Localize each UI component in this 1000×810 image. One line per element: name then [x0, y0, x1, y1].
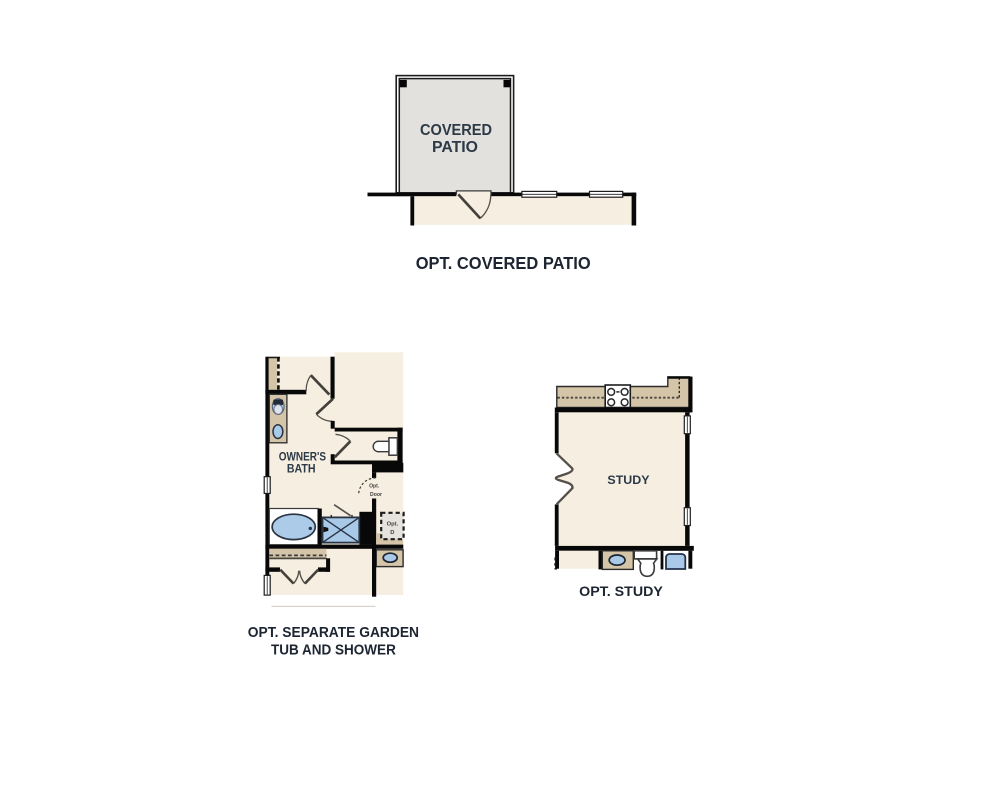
svg-text:PATIO: PATIO — [432, 139, 478, 156]
svg-text:Opt.: Opt. — [387, 522, 399, 528]
svg-text:Door: Door — [370, 492, 382, 498]
svg-text:OPT. STUDY: OPT. STUDY — [579, 583, 663, 599]
svg-text:OPT. SEPARATE GARDEN: OPT. SEPARATE GARDEN — [248, 625, 419, 641]
svg-text:BATH: BATH — [287, 464, 316, 476]
svg-text:D: D — [390, 530, 394, 536]
svg-text:OWNER'S: OWNER'S — [279, 452, 327, 464]
svg-text:COVERED: COVERED — [420, 122, 492, 139]
svg-text:TUB AND SHOWER: TUB AND SHOWER — [271, 643, 396, 659]
svg-text:STUDY: STUDY — [607, 473, 649, 487]
svg-text:Opt.: Opt. — [369, 484, 380, 490]
svg-text:OPT. COVERED PATIO: OPT. COVERED PATIO — [416, 253, 591, 273]
